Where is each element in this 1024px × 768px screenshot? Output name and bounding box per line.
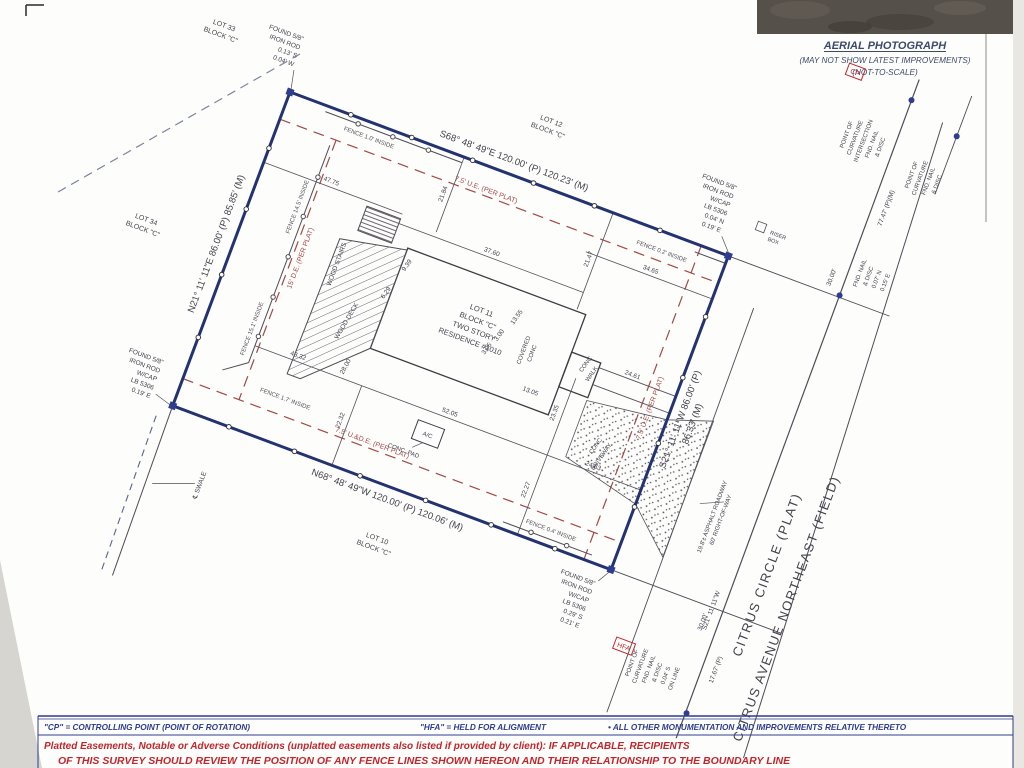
swale-label: ℄ SWALE <box>191 470 208 501</box>
dim-34-65: 34.65 <box>642 264 660 276</box>
riser-box: RISER BOX <box>752 221 788 248</box>
easement-bottom-label: 7.5' U.&D.E. (PER PLAT) <box>334 427 410 461</box>
note-line1b: "HFA" = HELD FOR ALIGNMENT <box>420 723 547 732</box>
fence-label-tr: FENCE 0.2' INSIDE <box>635 240 687 264</box>
survey-plat-scan: AERIAL PHOTOGRAPH (MAY NOT SHOW LATEST I… <box>0 0 1024 768</box>
fence-label-bl: FENCE 1.7' INSIDE <box>259 388 311 412</box>
note-line1a: "CP" = CONTROLLING POINT (POINT OF ROTAT… <box>44 723 250 732</box>
aerial-title: AERIAL PHOTOGRAPH <box>823 40 947 52</box>
dim-30-00-top: 30.00' <box>826 268 839 287</box>
dim-52-05: 52.05 <box>441 407 459 419</box>
swale-lines <box>98 402 217 592</box>
svg-text:HFA: HFA <box>616 642 632 653</box>
dim-13-55: 13.55 <box>509 308 524 326</box>
aerial-subtitle-2: (NOT-TO-SCALE) <box>852 68 918 77</box>
plat-canvas: AERIAL PHOTOGRAPH (MAY NOT SHOW LATEST I… <box>0 0 1024 768</box>
aerial-photo-block: AERIAL PHOTOGRAPH (MAY NOT SHOW LATEST I… <box>757 0 1013 77</box>
monument-note-bottom-left: FOUND 5/8" IRON ROD W/CAP LB 5306 0.19' … <box>115 347 184 407</box>
notes-block: "CP" = CONTROLLING POINT (POINT OF ROTAT… <box>38 716 1013 768</box>
note-line2: Platted Easements, Notable or Adverse Co… <box>44 741 690 752</box>
easement-top-label: 7.5' U.E. (PER PLAT) <box>454 175 519 205</box>
aerial-subtitle-1: (MAY NOT SHOW LATEST IMPROVEMENTS) <box>799 56 970 65</box>
wood-deck <box>287 201 416 398</box>
dim-77-47: 77.47' (P)(M) <box>877 189 897 227</box>
dim-3-00: 3.00 <box>493 328 506 343</box>
dim-13-05: 13.05 <box>521 385 539 397</box>
dim-17-67: 17.67' (P) <box>708 655 724 684</box>
dim-22-27: 22.27 <box>520 481 532 499</box>
monument-note-top-left: FOUND 5/8" IRON ROD 0.13' S 0.04' W <box>251 24 310 89</box>
fence-label-top: FENCE 1.0' INSIDE <box>343 126 395 150</box>
monument-note-pc-intersection: POINT OF CURVATURE INTERSECTION FND. NAI… <box>837 113 892 170</box>
bearing-south: N68° 48' 49"W 120.00' (P) 120.06' (M) <box>310 467 465 534</box>
easement-left-label: 15' D.E. (PER PLAT) <box>286 227 315 290</box>
note-line1c: • ALL OTHER MONUMENTATION AND IMPROVEMEN… <box>608 723 907 732</box>
hfa-flag: HFA <box>613 637 636 655</box>
monument-note-nail-top: FND. NAIL & DISC 0.07' N 0.15' E <box>853 258 894 297</box>
monument-note-bottom-right: FOUND 5/8" IRON ROD W/CAP LB 5306 0.29' … <box>544 556 609 633</box>
dim-47-75: 47.75 <box>322 175 340 187</box>
dim-23-35: 23.35 <box>549 404 561 422</box>
note-line3: OF THIS SURVEY SHOULD REVIEW THE POSITIO… <box>58 755 791 767</box>
dim-37-60: 37.60 <box>483 246 501 258</box>
bearing-west: N21° 11' 11"E 86.00' (P) 85.85' (M) <box>186 173 248 314</box>
dim-22-32: 22.32 <box>335 411 347 429</box>
plat-drawing: ℄ SWALE 7.5' U.E. (PER PLAT) 7.5' U.&D.E… <box>9 0 989 768</box>
